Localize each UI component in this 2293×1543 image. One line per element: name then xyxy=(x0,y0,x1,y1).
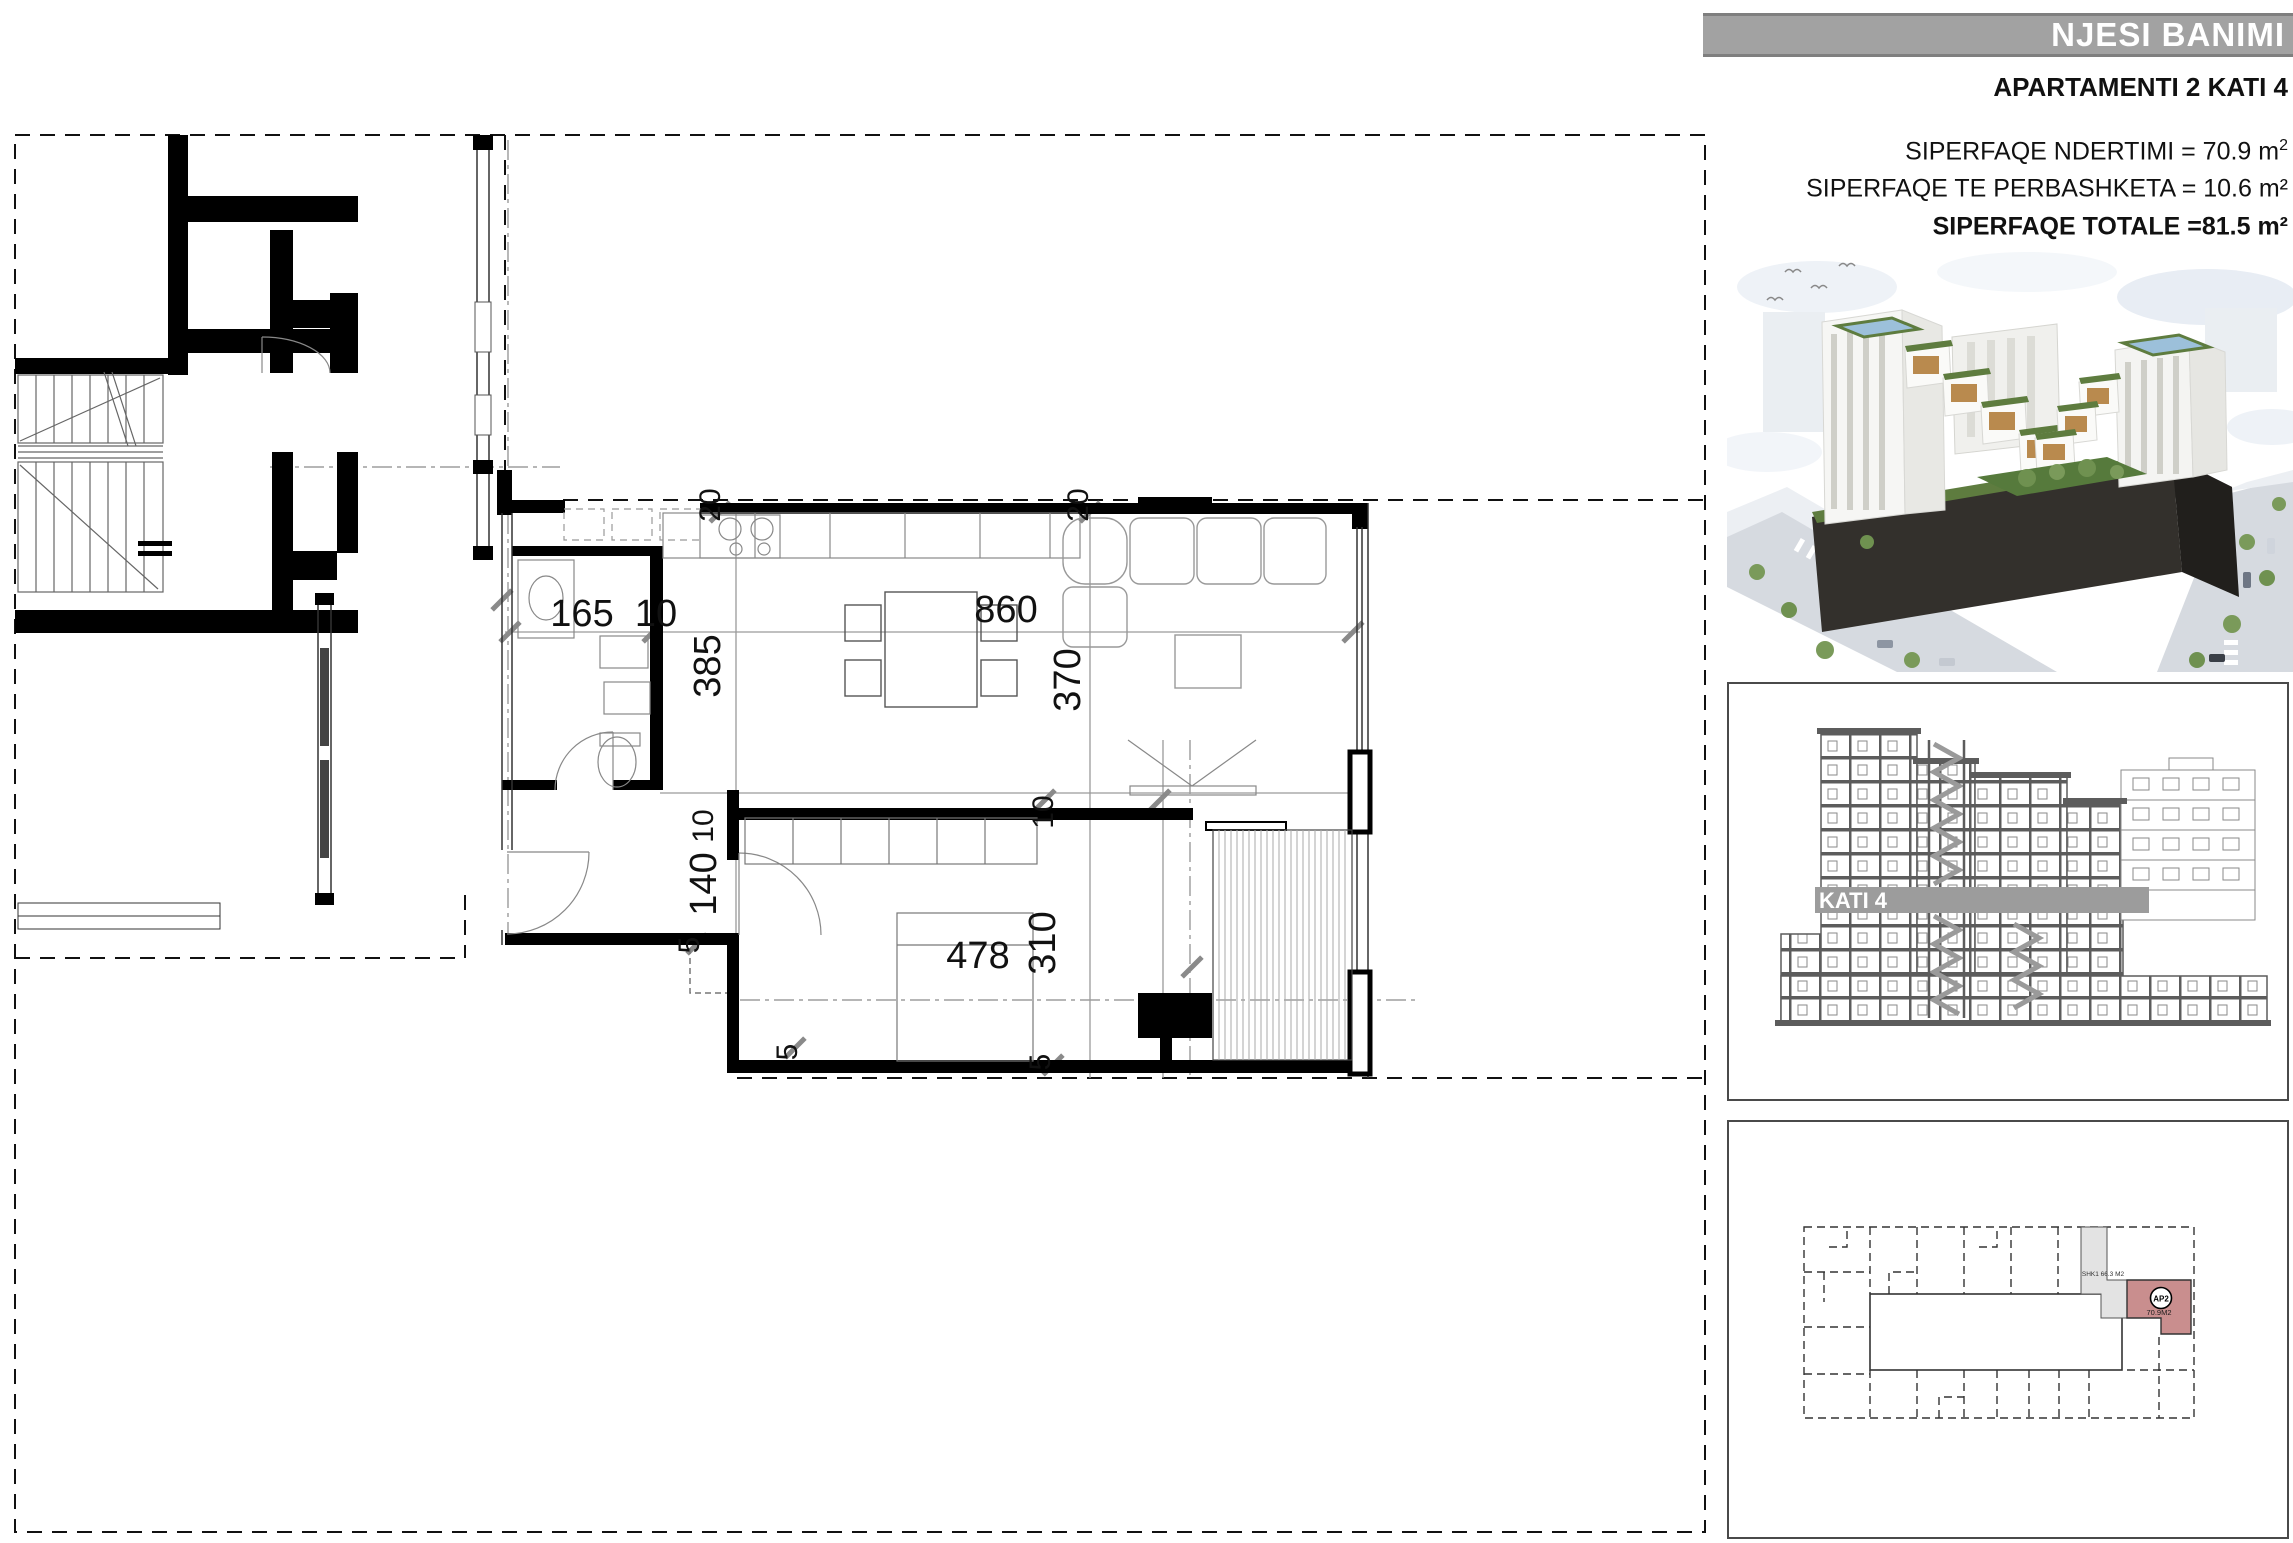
dimension-label: 5 xyxy=(771,1044,804,1061)
washing-machine xyxy=(600,636,648,668)
unit-area-label: 70.9M2 xyxy=(2146,1308,2171,1317)
terrace-hatch xyxy=(1213,830,1352,1060)
dimension-label: 140 xyxy=(683,852,725,915)
sheet: 1651086038537014047831010102020555 NJESI… xyxy=(0,0,2293,1543)
terrace-door-sill xyxy=(1206,822,1286,830)
unit-marker-label: AP2 xyxy=(2153,1295,2169,1304)
dimension-label: 5 xyxy=(673,937,706,954)
dimension-label: 310 xyxy=(1022,911,1064,974)
floor-plan-drawing: 1651086038537014047831010102020555 xyxy=(0,0,1720,1543)
apartment-subtitle: APARTAMENTI 2 KATI 4 xyxy=(1600,72,2288,103)
section-box: KATI 4 xyxy=(1727,682,2289,1101)
hob-burner xyxy=(751,518,773,540)
dimension-label: 20 xyxy=(694,488,727,521)
dimension-label: 10 xyxy=(1027,795,1060,828)
party-wall xyxy=(473,135,493,560)
area-line: SIPERFAQE NDERTIMI = 70.9 m2 xyxy=(1540,130,2288,167)
left-tower xyxy=(1822,310,1945,524)
dimension-label: 370 xyxy=(1047,648,1089,711)
dimension-labels: 1651086038537014047831010102020555 xyxy=(550,488,1095,1070)
column xyxy=(1138,993,1212,1038)
panel-title: NJESI BANIMI xyxy=(2051,16,2293,54)
window-band xyxy=(18,903,220,929)
dimension-label: 860 xyxy=(974,589,1037,631)
ground-line xyxy=(1775,1020,2271,1026)
apartment-thin-walls xyxy=(502,503,1368,1078)
stairs xyxy=(18,372,163,592)
area-line: SIPERFAQE TE PERBASHKETA = 10.6 m² xyxy=(1540,167,2288,204)
courtyard xyxy=(1870,1294,2122,1370)
sofa xyxy=(1063,518,1326,688)
dimension-label: 165 xyxy=(550,593,613,635)
dimension-label: 10 xyxy=(687,809,720,842)
coffee-table xyxy=(1175,635,1241,688)
wc-tank xyxy=(600,733,640,746)
hob-burner xyxy=(758,543,770,555)
wc xyxy=(598,737,636,787)
upper-cabinets-dashed xyxy=(564,509,700,540)
dimension-label: 385 xyxy=(687,634,729,697)
facade-piers xyxy=(1350,752,1370,1074)
wardrobe xyxy=(745,818,1037,864)
area-total-line: SIPERFAQE TOTALE =81.5 m² xyxy=(1540,205,2288,242)
building-section-drawing: KATI 4 xyxy=(1729,684,2285,1097)
dimension-label: 10 xyxy=(635,593,677,635)
panel-title-bar: NJESI BANIMI xyxy=(1703,13,2293,57)
dimension-label: 5 xyxy=(1024,1054,1057,1071)
existing-building-walls xyxy=(15,135,358,633)
common-area-label: SHK1 66.3 M2 xyxy=(2082,1271,2125,1278)
key-plan-box: AP2 70.9M2 SHK1 66.3 M2 xyxy=(1727,1120,2289,1539)
bedroom-door-arc xyxy=(739,853,821,935)
washing-machine xyxy=(604,682,650,714)
neighbour-window-wall xyxy=(315,593,334,905)
tv-unit xyxy=(1128,740,1256,795)
building-render-illustration xyxy=(1727,242,2293,672)
entry-door-arc xyxy=(507,852,589,934)
dimension-label: 478 xyxy=(946,935,1009,977)
area-summary: SIPERFAQE NDERTIMI = 70.9 m2 SIPERFAQE T… xyxy=(1540,130,2288,242)
stair-handrail-symbol xyxy=(138,541,172,556)
kati4-label: KATI 4 xyxy=(1819,888,1888,913)
key-plan-drawing: AP2 70.9M2 SHK1 66.3 M2 xyxy=(1729,1122,2285,1535)
dimension-lines xyxy=(505,503,1360,1078)
dimension-label: 20 xyxy=(1062,488,1095,521)
